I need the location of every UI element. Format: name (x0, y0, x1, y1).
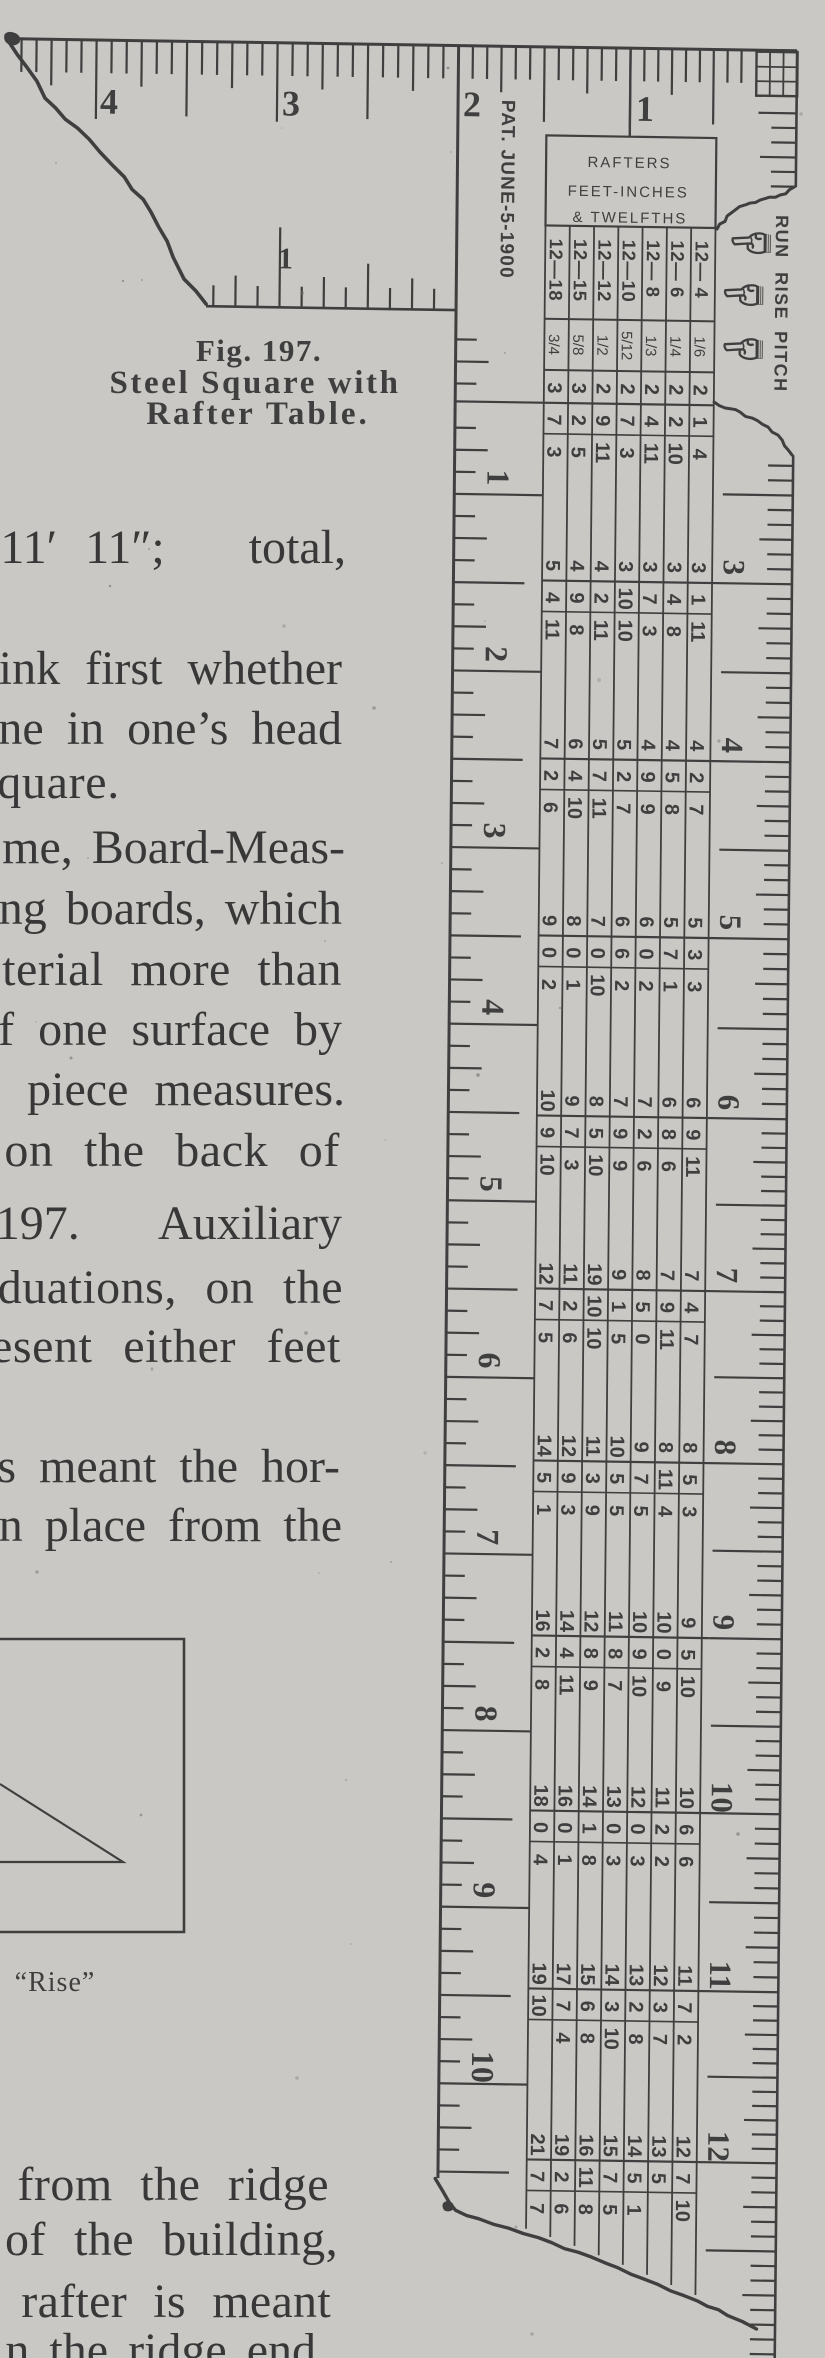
svg-text:4: 4 (529, 1854, 551, 1866)
svg-text:3: 3 (626, 1855, 648, 1866)
svg-text:4: 4 (685, 740, 707, 752)
svg-text:1/2: 1/2 (593, 335, 610, 356)
svg-text:1: 1 (687, 594, 709, 605)
svg-text:2: 2 (616, 383, 638, 394)
svg-text:ink first whether: ink first whether (0, 642, 342, 695)
svg-text:2: 2 (558, 1300, 580, 1311)
svg-text:21: 21 (526, 2133, 548, 2156)
svg-text:9: 9 (591, 415, 613, 426)
svg-text:2: 2 (610, 980, 632, 991)
svg-text:8: 8 (575, 2033, 597, 2044)
svg-text:4: 4 (661, 740, 683, 752)
svg-text:1: 1 (636, 89, 654, 129)
svg-text:5: 5 (659, 917, 681, 928)
svg-text:10: 10 (628, 1611, 650, 1634)
svg-text:7: 7 (543, 414, 565, 425)
svg-text:7: 7 (470, 1529, 506, 1546)
svg-text:9: 9 (560, 1095, 582, 1106)
svg-text:10: 10 (582, 1327, 604, 1350)
svg-text:12: 12 (626, 1786, 648, 1809)
svg-text:0: 0 (626, 1823, 648, 1834)
svg-text:2: 2 (664, 416, 686, 427)
svg-text:12: 12 (701, 2131, 736, 2163)
svg-text:3: 3 (717, 559, 752, 575)
svg-text:1/6: 1/6 (690, 336, 707, 357)
svg-text:5: 5 (612, 739, 634, 750)
svg-text:13: 13 (647, 2135, 669, 2158)
svg-text:PITCH: PITCH (770, 331, 791, 393)
svg-text:8: 8 (585, 1096, 607, 1107)
svg-text:11: 11 (581, 1436, 603, 1457)
svg-text:9: 9 (681, 1129, 703, 1140)
svg-text:8: 8 (574, 2204, 596, 2215)
svg-text:7: 7 (560, 1127, 582, 1138)
svg-text:2: 2 (479, 646, 515, 663)
svg-text:PAT. JUNE-5-1900: PAT. JUNE-5-1900 (495, 100, 518, 279)
svg-text:quare.: quare. (0, 756, 120, 809)
svg-text:13: 13 (625, 1964, 647, 1987)
svg-text:7: 7 (629, 1473, 651, 1484)
svg-text:11: 11 (574, 2167, 596, 2188)
svg-text:11: 11 (559, 1263, 581, 1284)
svg-text:8: 8 (530, 1679, 552, 1690)
svg-text:7: 7 (539, 738, 561, 749)
svg-text:3: 3 (663, 562, 685, 573)
svg-text:4: 4 (475, 999, 511, 1016)
svg-text:12: 12 (671, 2136, 693, 2159)
svg-text:2: 2 (673, 2034, 695, 2045)
svg-text:10: 10 (586, 974, 608, 997)
svg-text:ng boards, which: ng boards, which (0, 882, 342, 935)
svg-text:10: 10 (527, 1994, 549, 2017)
svg-text:4: 4 (662, 594, 684, 606)
svg-text:ne in one’s head: ne in one’s head (0, 702, 342, 755)
svg-text:3: 3 (678, 1506, 700, 1517)
svg-text:5: 5 (605, 1473, 627, 1484)
svg-text:5/12: 5/12 (618, 331, 635, 360)
svg-text:0: 0 (586, 948, 608, 959)
svg-text:1/3: 1/3 (642, 335, 659, 356)
svg-text:8: 8 (468, 1705, 504, 1722)
svg-text:12: 12 (534, 1262, 556, 1285)
svg-text:2: 2 (650, 1824, 672, 1835)
svg-text:0: 0 (537, 947, 559, 958)
svg-text:197. Auxiliary: 197. Auxiliary (0, 1197, 342, 1250)
svg-text:3: 3 (638, 561, 660, 572)
svg-text:14: 14 (533, 1434, 555, 1457)
svg-text:me, Board-Meas-: me, Board-Meas- (2, 821, 345, 874)
svg-text:2: 2 (591, 383, 613, 394)
svg-text:3: 3 (600, 2001, 622, 2012)
svg-text:6: 6 (682, 1097, 704, 1108)
svg-text:8: 8 (603, 1648, 625, 1659)
svg-text:6: 6 (610, 948, 632, 959)
svg-text:11: 11 (540, 619, 562, 640)
svg-text:9: 9 (467, 1882, 503, 1899)
svg-text:10: 10 (613, 619, 635, 642)
svg-text:4: 4 (555, 1647, 577, 1659)
svg-text:17: 17 (552, 1963, 574, 1986)
svg-text:6: 6 (564, 738, 586, 749)
svg-text:4: 4 (640, 416, 662, 428)
svg-text:9: 9 (652, 1681, 674, 1692)
svg-text:FEET-INCHES: FEET-INCHES (568, 183, 689, 202)
svg-text:11: 11 (655, 1329, 677, 1350)
svg-text:11: 11 (604, 1611, 626, 1632)
svg-text:7: 7 (588, 771, 610, 782)
svg-text:2: 2 (539, 770, 561, 781)
svg-text:3: 3 (683, 981, 705, 992)
svg-text:6: 6 (674, 1856, 696, 1867)
svg-text:5/8: 5/8 (569, 334, 586, 355)
svg-text:12—15: 12—15 (570, 239, 592, 302)
svg-text:3: 3 (556, 1504, 578, 1515)
svg-text:1: 1 (278, 242, 293, 275)
svg-text:9: 9 (579, 1680, 601, 1691)
svg-text:1: 1 (658, 981, 680, 992)
svg-text:3: 3 (542, 446, 564, 457)
svg-text:10: 10 (705, 1782, 740, 1814)
svg-text:19: 19 (550, 2134, 572, 2157)
svg-text:5: 5 (474, 1176, 510, 1193)
svg-text:of the building,: of the building, (5, 2213, 338, 2266)
svg-text:14: 14 (555, 1610, 577, 1633)
svg-text:10: 10 (465, 2051, 501, 2084)
svg-text:2: 2 (633, 1128, 655, 1139)
svg-text:2: 2 (634, 980, 656, 991)
svg-text:10: 10 (664, 442, 686, 465)
svg-text:9: 9 (636, 803, 658, 814)
svg-text:6: 6 (549, 2203, 571, 2214)
svg-text:1: 1 (688, 416, 710, 427)
svg-text:5: 5 (678, 1474, 700, 1485)
svg-text:2: 2 (612, 771, 634, 782)
svg-text:8: 8 (657, 1129, 679, 1140)
svg-text:4: 4 (541, 592, 563, 604)
svg-text:3: 3 (581, 1473, 603, 1484)
svg-text:7: 7 (615, 415, 637, 426)
svg-text:11: 11 (673, 1965, 695, 1986)
svg-text:15: 15 (576, 1963, 598, 1986)
svg-text:7: 7 (586, 916, 608, 927)
svg-text:10: 10 (675, 1787, 697, 1810)
svg-text:9: 9 (706, 1614, 741, 1630)
svg-text:9: 9 (636, 771, 658, 782)
svg-text:8: 8 (631, 1269, 653, 1280)
svg-text:11: 11 (555, 1674, 577, 1695)
svg-text:6: 6 (675, 1824, 697, 1835)
svg-text:10: 10 (600, 2027, 622, 2050)
svg-text:7: 7 (710, 1267, 745, 1283)
svg-text:8: 8 (562, 915, 584, 926)
svg-text:7: 7 (598, 2172, 620, 2183)
svg-text:from the ridge: from the ridge (17, 2158, 329, 2211)
svg-text:4: 4 (637, 739, 659, 751)
svg-text:8: 8 (577, 1855, 599, 1866)
svg-text:2: 2 (589, 593, 611, 604)
svg-text:5: 5 (607, 1333, 629, 1344)
svg-text:on the back of: on the back of (4, 1124, 340, 1177)
svg-text:12— 4: 12— 4 (691, 241, 713, 299)
svg-text:2: 2 (531, 1647, 553, 1658)
svg-text:2: 2 (537, 979, 559, 990)
svg-text:2: 2 (664, 384, 686, 395)
svg-text:3: 3 (683, 949, 705, 960)
svg-text:4: 4 (565, 560, 587, 572)
svg-text:7: 7 (659, 949, 681, 960)
svg-text:3: 3 (638, 625, 660, 636)
svg-text:9: 9 (557, 1472, 579, 1483)
svg-text:7: 7 (680, 1270, 702, 1281)
svg-text:16: 16 (531, 1609, 553, 1632)
svg-text:7: 7 (633, 1096, 655, 1107)
svg-text:5: 5 (567, 447, 589, 458)
svg-text:3/4: 3/4 (545, 334, 562, 355)
svg-text:4: 4 (100, 82, 118, 122)
svg-text:1/4: 1/4 (666, 336, 683, 357)
svg-text:3: 3 (649, 2002, 671, 2013)
svg-text:5: 5 (676, 1649, 698, 1660)
svg-text:15: 15 (599, 2134, 621, 2157)
svg-text:10: 10 (535, 1153, 557, 1176)
svg-text:10: 10 (536, 1089, 558, 1112)
svg-text:5: 5 (584, 1128, 606, 1139)
svg-text:6: 6 (558, 1332, 580, 1343)
svg-text:8: 8 (579, 1648, 601, 1659)
svg-text:9: 9 (581, 1505, 603, 1516)
svg-text:16: 16 (574, 2134, 596, 2157)
svg-text:9: 9 (677, 1617, 699, 1628)
svg-text:9: 9 (630, 1441, 652, 1452)
svg-text:14: 14 (600, 1963, 622, 1986)
svg-text:1: 1 (622, 2204, 644, 2215)
svg-text:4: 4 (590, 561, 612, 573)
svg-text:6: 6 (635, 916, 657, 927)
svg-text:19: 19 (583, 1263, 605, 1286)
svg-text:n place from the: n place from the (0, 1499, 342, 1552)
svg-text:11: 11 (681, 1156, 703, 1177)
svg-text:Fig. 197.: Fig. 197. (196, 333, 322, 368)
svg-text:“Rise”: “Rise” (15, 1967, 96, 1998)
svg-text:5: 5 (541, 560, 563, 571)
svg-text:Rafter Table.: Rafter Table. (146, 396, 370, 432)
svg-text:n the ridge end: n the ridge end (5, 2324, 316, 2358)
svg-text:1: 1 (607, 1301, 629, 1312)
svg-text:11: 11 (654, 1469, 676, 1490)
svg-text:10: 10 (671, 2200, 693, 2223)
svg-text:2: 2 (689, 384, 711, 395)
svg-text:9: 9 (538, 915, 560, 926)
svg-text:2: 2 (624, 2001, 646, 2012)
svg-text:10: 10 (584, 1154, 606, 1177)
svg-text:11: 11 (591, 442, 613, 463)
svg-text:6: 6 (472, 1352, 508, 1369)
svg-text:2: 2 (567, 415, 589, 426)
svg-text:7: 7 (638, 593, 660, 604)
svg-text:11: 11 (703, 1960, 738, 1990)
svg-text:8: 8 (662, 626, 684, 637)
svg-text:7: 7 (525, 2203, 547, 2214)
svg-text:19: 19 (527, 1962, 549, 1985)
svg-text:6: 6 (539, 802, 561, 813)
svg-text:7: 7 (603, 1680, 625, 1691)
svg-text:6: 6 (657, 1161, 679, 1172)
svg-text:11: 11 (686, 621, 708, 642)
svg-text:5: 5 (647, 2173, 669, 2184)
svg-text:10: 10 (614, 587, 636, 610)
svg-text:12: 12 (557, 1435, 579, 1458)
svg-text:0: 0 (562, 947, 584, 958)
svg-text:8: 8 (565, 624, 587, 635)
svg-text:12— 8: 12— 8 (642, 240, 664, 298)
svg-text:6: 6 (576, 2001, 598, 2012)
svg-text:10: 10 (676, 1676, 698, 1699)
svg-text:8: 8 (654, 1442, 676, 1453)
svg-text:4: 4 (551, 2032, 573, 2044)
svg-text:5: 5 (605, 1505, 627, 1516)
svg-text:5: 5 (534, 1332, 556, 1343)
svg-text:9: 9 (608, 1160, 630, 1171)
svg-text:9: 9 (536, 1127, 558, 1138)
svg-text:1: 1 (553, 1854, 575, 1865)
svg-text:12— 6: 12— 6 (667, 240, 689, 298)
svg-text:5: 5 (660, 772, 682, 783)
svg-text:12: 12 (649, 1964, 671, 1987)
svg-text:12: 12 (579, 1610, 601, 1633)
svg-text:8: 8 (708, 1439, 743, 1455)
svg-text:8: 8 (660, 804, 682, 815)
svg-text:5: 5 (683, 917, 705, 928)
svg-text:10: 10 (652, 1611, 674, 1634)
svg-text:0: 0 (652, 1649, 674, 1660)
svg-text:2: 2 (685, 772, 707, 783)
svg-text:7: 7 (525, 2171, 547, 2182)
svg-text:2: 2 (640, 384, 662, 395)
svg-text:RAFTERS: RAFTERS (587, 154, 671, 172)
svg-text:4: 4 (680, 1302, 702, 1314)
svg-text:4: 4 (653, 1506, 675, 1518)
svg-text:7: 7 (684, 804, 706, 815)
svg-text:12—12: 12—12 (594, 239, 616, 302)
svg-text:7: 7 (534, 1300, 556, 1311)
svg-text:6: 6 (711, 1094, 746, 1110)
svg-text:3: 3 (567, 383, 589, 394)
svg-text:7: 7 (612, 803, 634, 814)
svg-text:0: 0 (634, 948, 656, 959)
svg-text:& TWELFTHS: & TWELFTHS (573, 209, 688, 228)
svg-text:rafter is meant: rafter is meant (21, 2275, 331, 2328)
svg-text:4: 4 (688, 448, 710, 460)
svg-text:7: 7 (551, 2000, 573, 2011)
svg-text:0: 0 (631, 1333, 653, 1344)
svg-text:5: 5 (623, 2172, 645, 2183)
svg-text:12—10: 12—10 (618, 240, 640, 303)
svg-text:3: 3 (615, 447, 637, 458)
svg-text:5: 5 (532, 1472, 554, 1483)
svg-text:13: 13 (602, 1785, 624, 1808)
svg-text:esent either feet: esent either feet (0, 1320, 341, 1373)
svg-text:s meant the hor-: s meant the hor- (0, 1440, 340, 1493)
svg-text:terial more than: terial more than (2, 943, 342, 996)
svg-text:8: 8 (678, 1442, 700, 1453)
svg-text:0: 0 (529, 1822, 551, 1833)
svg-text:5: 5 (598, 2204, 620, 2215)
svg-text:7: 7 (671, 2173, 693, 2184)
svg-text:9: 9 (628, 1648, 650, 1659)
svg-text:9: 9 (655, 1302, 677, 1313)
svg-text:10: 10 (582, 1295, 604, 1318)
svg-text:10: 10 (563, 797, 585, 820)
svg-text:12—18: 12—18 (545, 238, 567, 301)
svg-text:3: 3 (601, 1855, 623, 1866)
svg-text:0: 0 (602, 1823, 624, 1834)
svg-text:piece measures.: piece measures. (27, 1063, 345, 1116)
svg-text:5: 5 (629, 1505, 651, 1516)
svg-text:2: 2 (463, 84, 481, 124)
svg-text:1: 1 (577, 1823, 599, 1834)
svg-text:18: 18 (529, 1784, 551, 1807)
svg-text:5: 5 (631, 1301, 653, 1312)
svg-text:3: 3 (614, 561, 636, 572)
svg-text:6: 6 (632, 1160, 654, 1171)
svg-text:8: 8 (624, 2033, 646, 2044)
svg-text:1: 1 (561, 979, 583, 990)
svg-text:1: 1 (532, 1504, 554, 1515)
svg-text:11: 11 (587, 798, 609, 819)
svg-text:5: 5 (713, 914, 748, 930)
svg-text:9: 9 (609, 1128, 631, 1139)
svg-text:2: 2 (650, 1856, 672, 1867)
svg-text:11: 11 (639, 443, 661, 464)
svg-text:RISE: RISE (771, 272, 791, 320)
svg-text:6: 6 (611, 916, 633, 927)
svg-text:4: 4 (563, 770, 585, 782)
svg-text:7: 7 (609, 1096, 631, 1107)
svg-text:0: 0 (553, 1822, 575, 1833)
svg-text:3: 3 (282, 83, 300, 123)
svg-text:7: 7 (679, 1334, 701, 1345)
svg-text:11: 11 (651, 1787, 673, 1808)
svg-text:10: 10 (627, 1675, 649, 1698)
svg-text:6: 6 (657, 1097, 679, 1108)
svg-text:10: 10 (605, 1435, 627, 1458)
svg-text:16: 16 (553, 1785, 575, 1808)
svg-text:3: 3 (543, 382, 565, 393)
svg-text:RUN: RUN (772, 215, 792, 259)
svg-text:5: 5 (588, 739, 610, 750)
svg-text:3: 3 (560, 1159, 582, 1170)
svg-text:2: 2 (550, 2171, 572, 2182)
svg-text:3: 3 (687, 562, 709, 573)
svg-text:7: 7 (656, 1270, 678, 1281)
svg-text:f one surface by: f one surface by (0, 1003, 342, 1056)
svg-text:3: 3 (477, 822, 513, 839)
svg-text:14: 14 (623, 2135, 645, 2158)
svg-text:9: 9 (565, 592, 587, 603)
svg-text:7: 7 (648, 2034, 670, 2045)
svg-text:9: 9 (607, 1269, 629, 1280)
svg-text:11′ 11″; total,: 11′ 11″; total, (0, 521, 346, 574)
svg-text:1: 1 (480, 469, 516, 486)
svg-text:4: 4 (715, 737, 750, 753)
svg-text:duations, on the: duations, on the (0, 1261, 343, 1314)
svg-text:14: 14 (578, 1785, 600, 1808)
svg-text:7: 7 (673, 2002, 695, 2013)
svg-text:11: 11 (589, 620, 611, 641)
